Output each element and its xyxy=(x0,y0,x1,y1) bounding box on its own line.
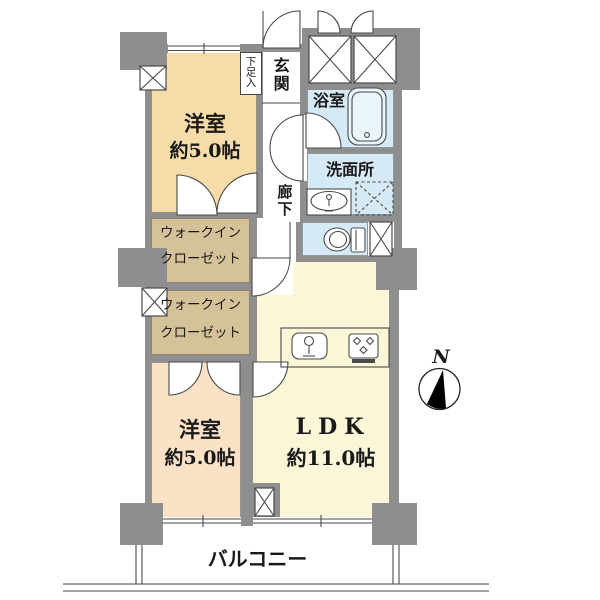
elevator-hall-door-arcs xyxy=(318,11,373,33)
bathroom-label: 浴室 xyxy=(308,92,350,110)
ldk-label: LDK xyxy=(278,415,388,439)
bedroom-top-label: 洋室 xyxy=(150,112,260,135)
hall-ldk-door-arc xyxy=(252,222,290,296)
washing-machine-space-icon xyxy=(356,182,393,215)
hallway-label: 廊下 xyxy=(276,184,293,218)
window-bottom-left xyxy=(163,515,241,527)
bedroom-bottom-label: 洋室 xyxy=(146,418,254,441)
window-top xyxy=(168,43,240,54)
compass-north-label: N xyxy=(430,347,452,368)
balcony-label: バルコニー xyxy=(200,548,315,570)
pipe-space-icon-toilet xyxy=(370,222,392,256)
ldk-size: 約11.0帖 xyxy=(266,447,396,469)
entrance-door-arc xyxy=(263,11,300,48)
entrance-label: 玄関 xyxy=(271,57,289,93)
compass-icon xyxy=(419,369,460,410)
wic-bottom-door-arcs xyxy=(169,362,240,395)
bedroom-top-door-arc xyxy=(270,115,303,181)
wic-top-label-line1: ウォークイン xyxy=(151,226,250,241)
wic-top-door-arcs xyxy=(177,173,257,215)
wic-bottom-label-line1: ウォークイン xyxy=(151,298,250,313)
pipe-space-icon-bottom xyxy=(255,488,274,516)
bathtub-icon xyxy=(348,88,386,145)
toilet-icon xyxy=(324,228,365,252)
elevator-icon xyxy=(309,36,396,83)
fixtures-overlay xyxy=(0,0,600,600)
wic-top-label-line2: クローゼット xyxy=(151,252,250,267)
floorplan-canvas: 洋室 約5.0帖 下足入 玄関 廊下 浴室 洗面所 ウォークイン クローゼット … xyxy=(0,0,600,600)
washroom-label: 洗面所 xyxy=(318,161,382,179)
wic-bottom-label-line2: クローゼット xyxy=(151,326,250,341)
bathroom-door-arc xyxy=(306,113,341,148)
bedroom-top-size: 約5.0帖 xyxy=(145,141,265,162)
washbasin-icon xyxy=(307,189,351,215)
bedroom-bottom-size: 約5.0帖 xyxy=(141,448,259,469)
shoe-cabinet-label: 下足入 xyxy=(244,56,256,88)
stove-icon xyxy=(349,334,378,363)
window-bottom-right xyxy=(253,515,372,527)
pipe-space-icon-bedroom-top xyxy=(140,66,166,90)
